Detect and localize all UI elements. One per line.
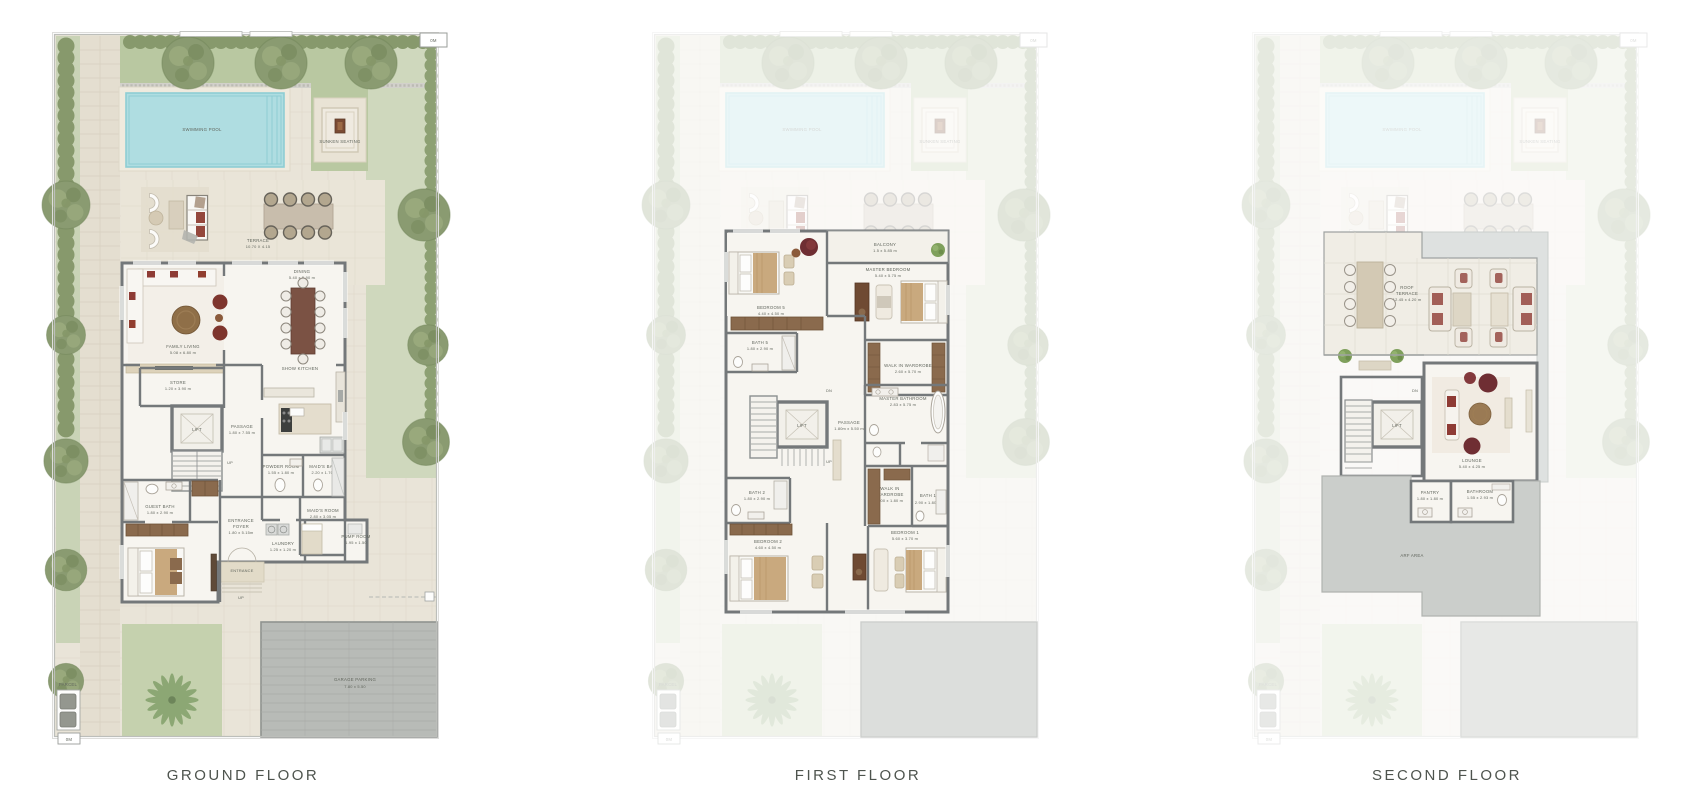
svg-text:GUEST BATH: GUEST BATH bbox=[145, 504, 175, 509]
svg-text:PASSAGE: PASSAGE bbox=[838, 420, 860, 425]
svg-text:ENTRANCE: ENTRANCE bbox=[230, 568, 253, 573]
svg-text:DN: DN bbox=[1412, 388, 1418, 393]
svg-text:DN: DN bbox=[826, 388, 832, 393]
svg-text:FIRST FLOOR: FIRST FLOOR bbox=[795, 767, 921, 784]
svg-text:1.80 x 7.55 m: 1.80 x 7.55 m bbox=[229, 430, 255, 435]
svg-text:5.40 x 4.25 m: 5.40 x 4.25 m bbox=[1459, 464, 1485, 469]
svg-text:LIFT: LIFT bbox=[797, 423, 807, 428]
svg-text:PASSAGE: PASSAGE bbox=[231, 424, 253, 429]
svg-text:LIFT: LIFT bbox=[1392, 423, 1402, 428]
svg-text:PANTRY: PANTRY bbox=[1421, 490, 1440, 495]
svg-text:UP: UP bbox=[826, 459, 832, 464]
svg-text:1.55 x 1.80 m: 1.55 x 1.80 m bbox=[268, 470, 294, 475]
svg-text:5.60 x 3.70 m: 5.60 x 3.70 m bbox=[892, 536, 918, 541]
svg-text:2.83 x 5.75 m: 2.83 x 5.75 m bbox=[890, 402, 916, 407]
svg-text:UP: UP bbox=[227, 460, 233, 465]
svg-text:ARF AREA: ARF AREA bbox=[1400, 553, 1423, 558]
svg-text:FOYER: FOYER bbox=[233, 524, 249, 529]
svg-text:12.45 x 4.20 m: 12.45 x 4.20 m bbox=[1393, 297, 1422, 302]
svg-text:GROUND FLOOR: GROUND FLOOR bbox=[167, 767, 320, 784]
svg-text:2.60 x 5.70 m: 2.60 x 5.70 m bbox=[895, 369, 921, 374]
svg-text:BALCONY: BALCONY bbox=[874, 242, 896, 247]
svg-text:ROOF: ROOF bbox=[1400, 285, 1414, 290]
svg-text:UP: UP bbox=[238, 595, 244, 600]
svg-text:MASTER BEDROOM: MASTER BEDROOM bbox=[866, 267, 911, 272]
svg-text:BATHROOM: BATHROOM bbox=[1467, 489, 1494, 494]
svg-text:BEDROOM 5: BEDROOM 5 bbox=[757, 305, 785, 310]
svg-text:WALK IN WARDROBE: WALK IN WARDROBE bbox=[884, 363, 932, 368]
svg-text:MASTER BATHROOM: MASTER BATHROOM bbox=[879, 396, 927, 401]
svg-text:BATH 5: BATH 5 bbox=[752, 340, 769, 345]
svg-text:1.55 x 2.93 m: 1.55 x 2.93 m bbox=[1467, 495, 1493, 500]
svg-text:1.80 x 5.15m: 1.80 x 5.15m bbox=[229, 530, 254, 535]
svg-text:SECOND FLOOR: SECOND FLOOR bbox=[1372, 767, 1522, 784]
svg-text:LIFT: LIFT bbox=[192, 427, 202, 432]
svg-text:1.80 x 2.90 m: 1.80 x 2.90 m bbox=[747, 346, 773, 351]
svg-text:1.25 x 1.20 m: 1.25 x 1.20 m bbox=[270, 547, 296, 552]
svg-text:LAUNDRY: LAUNDRY bbox=[272, 541, 294, 546]
svg-text:1.95 x 1.50: 1.95 x 1.50 bbox=[345, 540, 367, 545]
svg-text:STORE: STORE bbox=[170, 380, 186, 385]
svg-text:1.80 x 2.90 m: 1.80 x 2.90 m bbox=[744, 496, 770, 501]
svg-text:5.40 x 5.75 m: 5.40 x 5.75 m bbox=[875, 273, 901, 278]
svg-text:LOUNGE: LOUNGE bbox=[1462, 458, 1482, 463]
svg-text:ENTRANCE: ENTRANCE bbox=[228, 518, 254, 523]
svg-text:1.20 x 3.90 m: 1.20 x 3.90 m bbox=[165, 386, 191, 391]
svg-text:4.60 x 4.50 m: 4.60 x 4.50 m bbox=[755, 545, 781, 550]
svg-text:WARDROBE: WARDROBE bbox=[876, 492, 903, 497]
svg-text:1.5 x 5.85 m: 1.5 x 5.85 m bbox=[873, 248, 897, 253]
svg-text:4.40 x 4.50 m: 4.40 x 4.50 m bbox=[758, 311, 784, 316]
svg-text:1.80 x 1.80 m: 1.80 x 1.80 m bbox=[1417, 496, 1443, 501]
svg-text:2.80 x 3.05 m: 2.80 x 3.05 m bbox=[310, 514, 336, 519]
svg-text:SHOW KITCHEN: SHOW KITCHEN bbox=[282, 366, 318, 371]
svg-text:BEDROOM 2: BEDROOM 2 bbox=[754, 539, 782, 544]
svg-text:BATH 1: BATH 1 bbox=[920, 493, 937, 498]
svg-text:TERRACE: TERRACE bbox=[1396, 291, 1418, 296]
svg-text:WALK IN: WALK IN bbox=[880, 486, 899, 491]
svg-text:1.80 x 2.90 m: 1.80 x 2.90 m bbox=[147, 510, 173, 515]
svg-text:BEDROOM 1: BEDROOM 1 bbox=[891, 530, 919, 535]
svg-text:1.80m x 5.50 m: 1.80m x 5.50 m bbox=[834, 426, 864, 431]
svg-text:5.08 x 6.80 m: 5.08 x 6.80 m bbox=[170, 350, 196, 355]
svg-text:5.00 x 1.80 m: 5.00 x 1.80 m bbox=[877, 498, 903, 503]
svg-text:PUMP ROOM: PUMP ROOM bbox=[341, 534, 370, 539]
svg-text:MAID'S ROOM: MAID'S ROOM bbox=[307, 508, 339, 513]
svg-text:BATH 2: BATH 2 bbox=[749, 490, 766, 495]
svg-text:DINING: DINING bbox=[294, 269, 311, 274]
svg-text:FAMILY LIVING: FAMILY LIVING bbox=[166, 344, 200, 349]
